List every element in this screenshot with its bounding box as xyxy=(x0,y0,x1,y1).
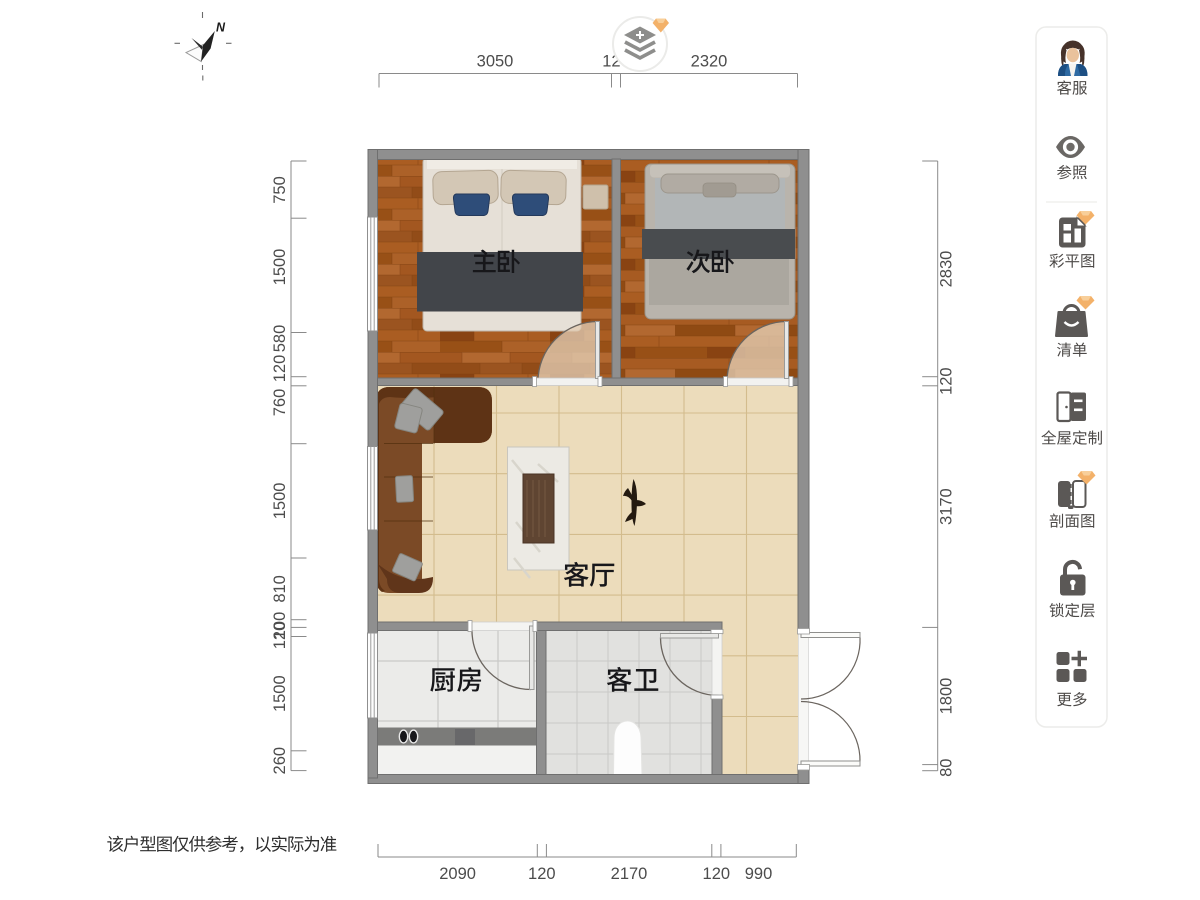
svg-text:120: 120 xyxy=(938,367,956,395)
svg-text:580: 580 xyxy=(271,325,289,353)
svg-text:120: 120 xyxy=(271,622,289,650)
svg-text:3050: 3050 xyxy=(477,53,514,71)
svg-text:750: 750 xyxy=(271,176,289,204)
svg-text:1500: 1500 xyxy=(271,675,289,712)
svg-text:260: 260 xyxy=(271,747,289,775)
svg-text:1500: 1500 xyxy=(271,249,289,286)
svg-text:2090: 2090 xyxy=(439,865,476,883)
svg-text:N: N xyxy=(216,21,226,35)
svg-text:3170: 3170 xyxy=(938,488,956,525)
svg-text:2320: 2320 xyxy=(691,53,728,71)
svg-text:120: 120 xyxy=(528,865,556,883)
svg-text:120: 120 xyxy=(271,355,289,383)
svg-text:990: 990 xyxy=(745,865,773,883)
svg-text:120: 120 xyxy=(703,865,731,883)
svg-text:80: 80 xyxy=(938,759,956,777)
svg-text:2170: 2170 xyxy=(611,865,648,883)
svg-text:1800: 1800 xyxy=(938,678,956,715)
svg-text:2830: 2830 xyxy=(938,251,956,288)
svg-text:760: 760 xyxy=(271,389,289,417)
svg-text:1500: 1500 xyxy=(271,483,289,520)
svg-text:810: 810 xyxy=(271,575,289,603)
